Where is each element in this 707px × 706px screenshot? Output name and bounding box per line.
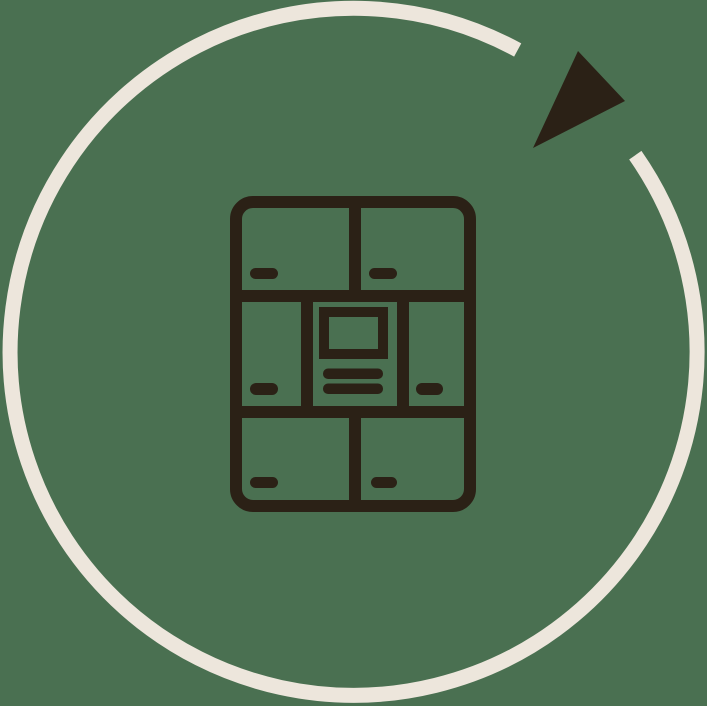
handle-bottom-left (250, 477, 278, 488)
rotation-lockers-illustration (0, 0, 707, 706)
lockers-icon (232, 202, 474, 506)
screen-slot-bar-1 (323, 369, 383, 380)
screen-slot-bar-2 (323, 384, 383, 395)
handle-bottom-right (371, 477, 397, 488)
handle-middle-left (250, 383, 278, 395)
rotation-arrowhead-icon (533, 51, 625, 148)
control-screen-icon (324, 312, 383, 354)
handle-top-left (250, 268, 278, 279)
illustration-background (0, 0, 707, 706)
handle-middle-right (416, 383, 443, 395)
handle-top-right (369, 268, 397, 279)
